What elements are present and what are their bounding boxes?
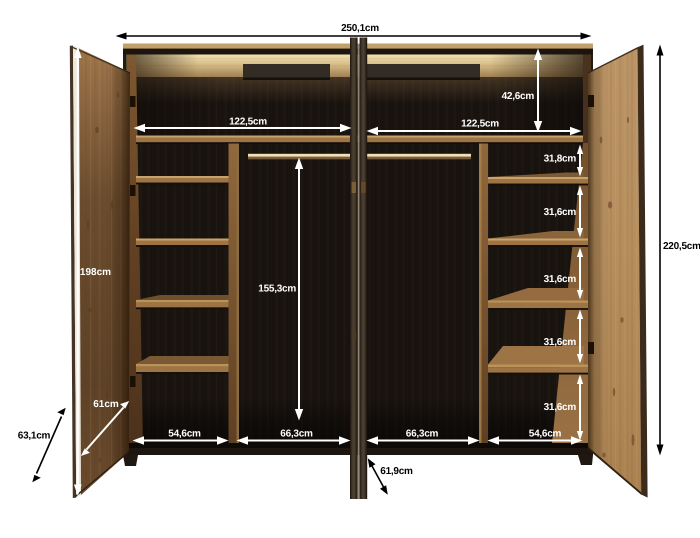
svg-text:220,5cm: 220,5cm bbox=[663, 241, 700, 252]
svg-text:122,5cm: 122,5cm bbox=[461, 119, 499, 130]
svg-text:31,6cm: 31,6cm bbox=[544, 337, 577, 348]
svg-text:31,6cm: 31,6cm bbox=[544, 402, 577, 413]
svg-text:61cm: 61cm bbox=[93, 399, 119, 410]
svg-text:54,6cm: 54,6cm bbox=[168, 429, 201, 440]
svg-text:31,6cm: 31,6cm bbox=[544, 207, 577, 218]
svg-text:250,1cm: 250,1cm bbox=[341, 23, 379, 34]
svg-text:66,3cm: 66,3cm bbox=[280, 429, 313, 440]
svg-text:42,6cm: 42,6cm bbox=[502, 91, 535, 102]
svg-text:66,3cm: 66,3cm bbox=[406, 429, 439, 440]
svg-text:198cm: 198cm bbox=[80, 267, 111, 278]
svg-text:122,5cm: 122,5cm bbox=[229, 117, 267, 128]
svg-text:61,9cm: 61,9cm bbox=[380, 466, 413, 477]
svg-text:31,8cm: 31,8cm bbox=[544, 154, 577, 165]
svg-text:54,6cm: 54,6cm bbox=[529, 429, 562, 440]
svg-text:63,1cm: 63,1cm bbox=[18, 431, 51, 442]
svg-text:155,3cm: 155,3cm bbox=[258, 284, 296, 295]
svg-text:31,6cm: 31,6cm bbox=[544, 274, 577, 285]
